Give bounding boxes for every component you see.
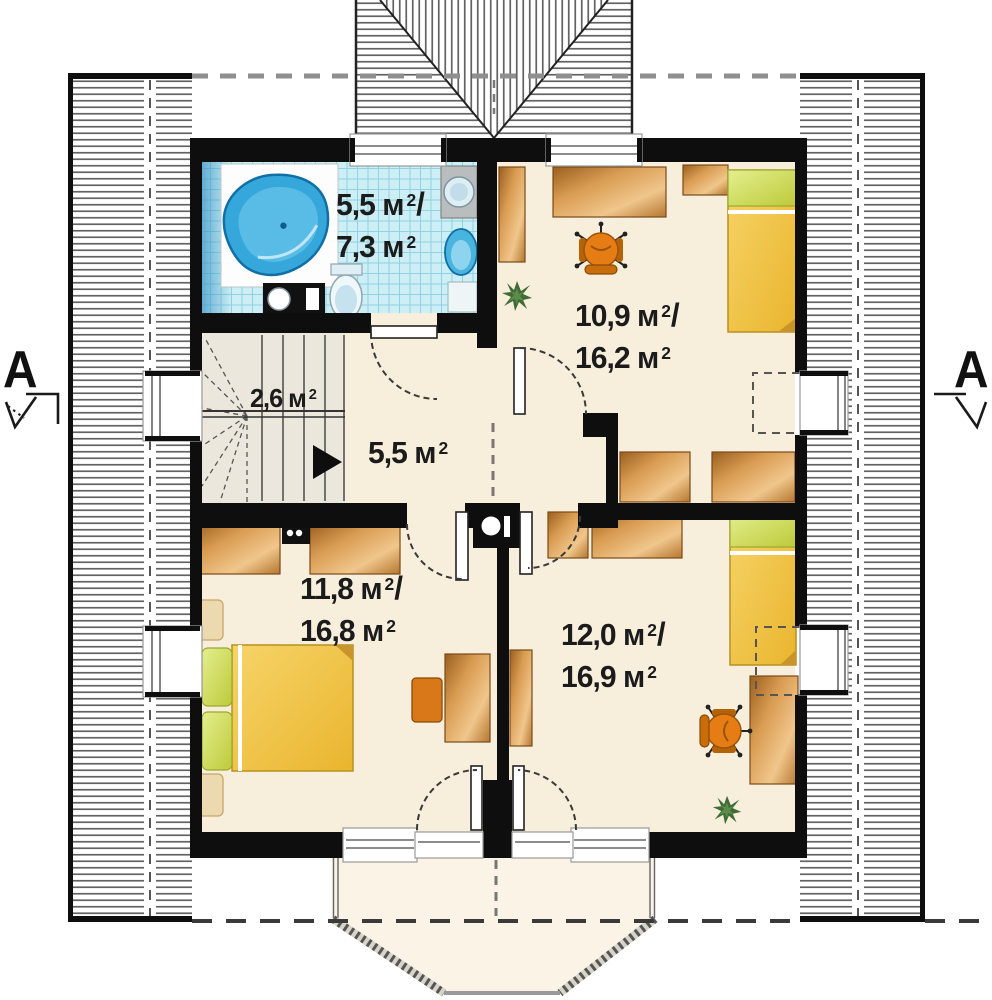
section-marker-a-left: A [3,344,38,396]
staircase [202,333,345,503]
headboard-shelf [683,165,728,195]
bookshelf [499,167,525,262]
bed-single [728,170,796,332]
wardrobe [193,524,280,574]
shower-tray [448,282,477,312]
chimney [473,503,520,548]
balcony-window-right [571,828,649,862]
floor-plan: 5,5 м2/ 7,3 м2 10,9 м2/ 16,2 м2 2,6 м2 5… [0,0,992,1000]
room-area-label-bathroom: 5,5 м2/ 7,3 м2 [336,182,424,268]
bed-single [730,513,796,665]
room-area-label-bedroom: 11,8 м2/ 16,8 м2 [300,566,402,652]
room-area-label-top-right: 10,9 м2/ 16,2 м2 [575,293,679,379]
floor-plan-drawing [0,0,992,1000]
balcony-window-left [343,828,417,862]
balcony [332,858,655,993]
cabinet [620,452,690,502]
roof-slope-right [800,73,925,922]
window-top-right [546,134,642,166]
bidet [445,229,477,275]
cabinet [510,650,532,746]
dormer-roof [356,0,632,138]
stool [412,678,442,722]
window-left-bedroom [143,626,202,697]
desk [445,654,490,742]
vanity-counter [263,283,325,315]
toilet [330,264,362,319]
room-area-label-stairs: 2,6 м2 [250,381,316,416]
desk [750,676,798,784]
window-top-left [350,134,446,166]
section-marker-a-right: A [954,344,989,396]
room-area-label-hall: 5,5 м2 [368,432,447,474]
cabinet [712,452,795,502]
roof-slope-left [68,73,192,922]
window-left-stair [143,371,202,441]
desk [553,167,666,217]
bathtub [212,160,343,287]
washbasin [441,166,477,218]
room-area-label-bottom-right: 12,0 м2/ 16,9 м2 [561,612,665,698]
